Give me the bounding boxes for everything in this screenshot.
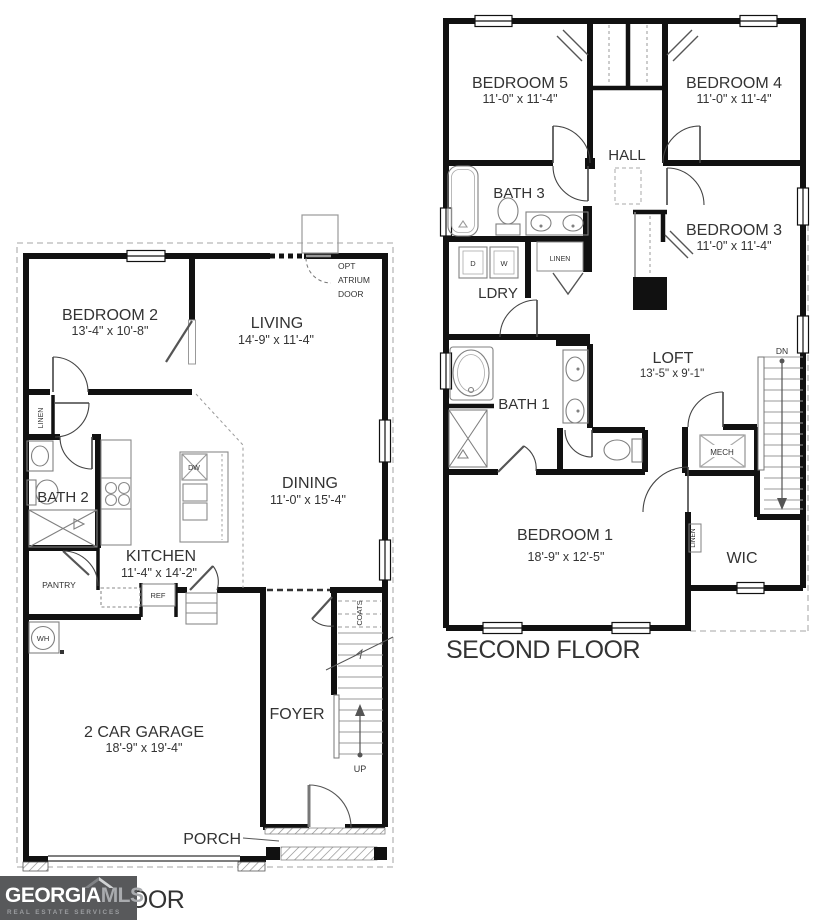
opt-atrium-door-label-3: DOOR bbox=[338, 289, 364, 299]
loft-label: LOFT bbox=[653, 350, 694, 367]
up-label: UP bbox=[354, 764, 367, 774]
bedroom1-label: BEDROOM 1 bbox=[517, 527, 613, 544]
bath3-vanity bbox=[526, 212, 588, 235]
dn-label: DN bbox=[776, 346, 788, 356]
bedroom3-label: BEDROOM 3 bbox=[686, 222, 782, 239]
loft-dims: 13'-5" x 9'-1" bbox=[640, 368, 704, 380]
floorplan-drawing: BEDROOM 2 13'-4" x 10'-8" LIVING 14'-9" … bbox=[0, 0, 825, 920]
laundry-fixtures bbox=[459, 247, 518, 278]
first-floor-windows bbox=[127, 251, 391, 581]
opt-atrium-door bbox=[270, 215, 338, 283]
mech-label: MECH bbox=[710, 448, 734, 457]
bedroom4-dims: 11'-0" x 11'-4" bbox=[696, 92, 771, 106]
bath3-tub bbox=[448, 166, 478, 236]
opt-atrium-door-label-2: ATRIUM bbox=[338, 275, 370, 285]
porch-post-left bbox=[266, 847, 280, 860]
coats-label: COATS bbox=[355, 600, 364, 625]
linen-hall-label: LINEN bbox=[550, 256, 571, 263]
first-floor-plan: BEDROOM 2 13'-4" x 10'-8" LIVING 14'-9" … bbox=[17, 215, 393, 914]
bedroom5-dims: 11'-0" x 11'-4" bbox=[482, 92, 557, 106]
bath2-sink bbox=[32, 446, 49, 466]
ref-label: REF bbox=[151, 591, 166, 600]
kitchen-label: KITCHEN bbox=[126, 548, 196, 565]
attic-access bbox=[615, 168, 641, 204]
second-floor-plan: BEDROOM 5 11'-0" x 11'-4" BEDROOM 4 11'-… bbox=[441, 16, 809, 665]
bedroom5-label: BEDROOM 5 bbox=[472, 75, 568, 92]
living-dims: 14'-9" x 11'-4" bbox=[238, 333, 314, 347]
toilet-room-tank bbox=[632, 439, 642, 462]
washer-label: W bbox=[500, 259, 508, 268]
second-floor-stairs bbox=[758, 357, 803, 510]
bedroom4-label: BEDROOM 4 bbox=[686, 75, 782, 92]
toilet-room-bowl bbox=[604, 440, 630, 460]
garage-door bbox=[23, 856, 265, 871]
bath2-label: BATH 2 bbox=[37, 489, 88, 506]
logo-tagline: REAL ESTATE SERVICES bbox=[7, 909, 121, 916]
porch-label: PORCH bbox=[183, 831, 241, 848]
bath1-label: BATH 1 bbox=[498, 396, 549, 413]
linen-wic-label: LINEN bbox=[690, 528, 697, 547]
wh-label: WH bbox=[37, 634, 50, 643]
dining-dims: 11'-0" x 15'-4" bbox=[270, 493, 346, 507]
bedroom2-dims: 13'-4" x 10'-8" bbox=[72, 324, 149, 338]
kitchen-dims: 11'-4" x 14'-2" bbox=[121, 566, 197, 580]
dining-label: DINING bbox=[282, 475, 338, 492]
wic-label: WIC bbox=[726, 550, 757, 567]
hall-label: HALL bbox=[608, 147, 646, 164]
opt-atrium-door-label-1: OPT bbox=[338, 261, 355, 271]
bedroom1-dims: 18'-9" x 12'-5" bbox=[528, 550, 605, 564]
logo-brand-suffix: MLS bbox=[101, 884, 144, 907]
garage-steps bbox=[186, 593, 217, 624]
second-floor-windows bbox=[441, 16, 809, 634]
bedroom3-dims: 11'-0" x 11'-4" bbox=[696, 239, 771, 253]
garage-dims: 18'-9" x 19'-4" bbox=[106, 741, 183, 755]
first-floor-walls bbox=[26, 253, 385, 862]
bath3-toilet-tank bbox=[496, 224, 520, 235]
logo-brand: GEORGIA bbox=[5, 884, 101, 907]
ldry-wall-chunk bbox=[556, 334, 590, 346]
ldry-label: LDRY bbox=[478, 285, 518, 302]
foyer-label: FOYER bbox=[269, 706, 324, 723]
dw-label: DW bbox=[188, 465, 200, 472]
georgia-mls-logo: GEORGIAMLS REAL ESTATE SERVICES bbox=[0, 876, 137, 920]
porch-post-right bbox=[374, 847, 387, 860]
porch-structure bbox=[265, 828, 387, 860]
bedroom3-wall-chunk bbox=[633, 277, 667, 310]
bath3-label: BATH 3 bbox=[493, 185, 544, 202]
second-floor-title: SECOND FLOOR bbox=[446, 636, 640, 664]
garage-label: 2 CAR GARAGE bbox=[84, 724, 204, 741]
dryer-label: D bbox=[470, 259, 476, 268]
porch-leader-line bbox=[243, 838, 279, 841]
pantry-label: PANTRY bbox=[42, 580, 76, 590]
bedroom2-label: BEDROOM 2 bbox=[62, 307, 158, 324]
atrium-bumpout bbox=[302, 215, 338, 253]
floorplan-page: BEDROOM 2 13'-4" x 10'-8" LIVING 14'-9" … bbox=[0, 0, 825, 920]
second-floor-walls bbox=[446, 18, 806, 628]
living-label: LIVING bbox=[251, 315, 303, 332]
linen1-label: LINEN bbox=[38, 408, 45, 429]
